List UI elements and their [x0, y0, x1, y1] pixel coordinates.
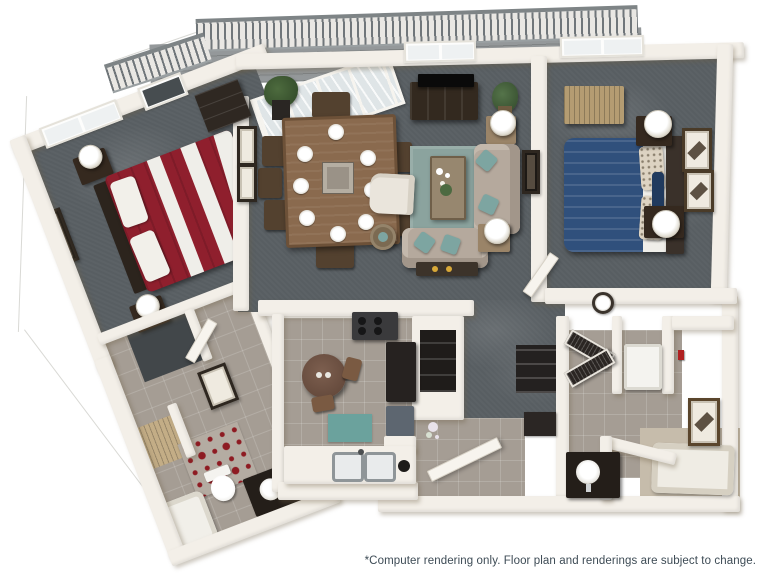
kitchen-backsplash-wall — [278, 482, 418, 500]
frame-mat — [242, 169, 252, 197]
side-table-bowl — [378, 232, 388, 242]
armchair — [369, 173, 415, 215]
console-table — [416, 262, 478, 276]
end-table-top-lamp — [490, 110, 516, 136]
dining-centerpiece — [322, 162, 354, 194]
kitchen-faucet — [358, 449, 364, 455]
property-line-left — [18, 96, 27, 332]
place-setting — [358, 214, 374, 230]
bedroom2-wall-frame-2 — [684, 170, 714, 212]
lamp-2b — [652, 210, 680, 238]
tv-console — [410, 82, 478, 120]
end-table-bottom-lamp — [484, 218, 510, 244]
bathroom2-faucet — [586, 484, 591, 492]
place-setting — [297, 146, 313, 162]
window-pane — [563, 40, 600, 55]
stove-burners — [358, 317, 366, 325]
floor-plan-scene: *Computer rendering only. Floor plan and… — [0, 0, 764, 573]
place-setting — [328, 124, 344, 140]
wall-fire-device — [678, 350, 684, 360]
kitchen-sink-basin-1 — [332, 452, 364, 482]
place-setting — [299, 210, 315, 226]
place-setting — [293, 178, 309, 194]
refrigerator — [386, 342, 416, 402]
bedroom2-dresser — [564, 86, 624, 124]
bathroom2-wall-art — [688, 398, 720, 446]
coffee-table-flowers — [436, 168, 443, 175]
tv — [418, 74, 474, 87]
bathroom2-sink — [576, 460, 600, 484]
dining-chair-top — [312, 92, 350, 118]
living-wall-art — [522, 150, 540, 194]
stove — [352, 312, 398, 340]
window-pane — [441, 44, 472, 59]
wall-clock — [592, 292, 614, 314]
bed2-pleats — [564, 138, 643, 252]
bedroom2-window — [560, 35, 644, 58]
mirror-glass — [203, 369, 232, 404]
bedroom2-bottom-wall — [545, 288, 737, 304]
pantry-interior — [420, 330, 456, 392]
kitchen-left-wall — [272, 314, 284, 492]
kitchen-mat — [328, 414, 372, 442]
dining-chair-left-2 — [258, 168, 282, 198]
art-inner — [527, 155, 535, 189]
hall-cabinet — [524, 412, 556, 436]
coffee-table-greenery — [440, 184, 452, 196]
counter-basket — [398, 460, 410, 472]
breakfast-table-plates — [316, 372, 322, 378]
place-setting — [360, 150, 376, 166]
window-pane — [603, 39, 640, 54]
kitchen-sink-basin-2 — [364, 452, 396, 482]
dining-wall-frame-2 — [237, 164, 257, 202]
console-decor — [432, 266, 438, 272]
bath2-top-right-wall — [672, 316, 734, 330]
disclaimer-text: *Computer rendering only. Floor plan and… — [365, 555, 756, 567]
frame-mat — [242, 131, 252, 161]
living-window — [404, 40, 476, 63]
entry-flowers — [428, 422, 438, 432]
window-pane — [407, 45, 438, 60]
dining-wall-frame-1 — [237, 126, 257, 166]
washer — [624, 344, 662, 390]
place-setting — [330, 226, 346, 242]
bedroom2-wall-frame-1 — [682, 128, 712, 172]
linen-closet-interior — [516, 345, 556, 393]
breakfast-table — [302, 354, 346, 398]
main-bottom-wall — [378, 496, 740, 512]
lamp-2a — [644, 110, 672, 138]
dishwasher — [386, 406, 414, 436]
